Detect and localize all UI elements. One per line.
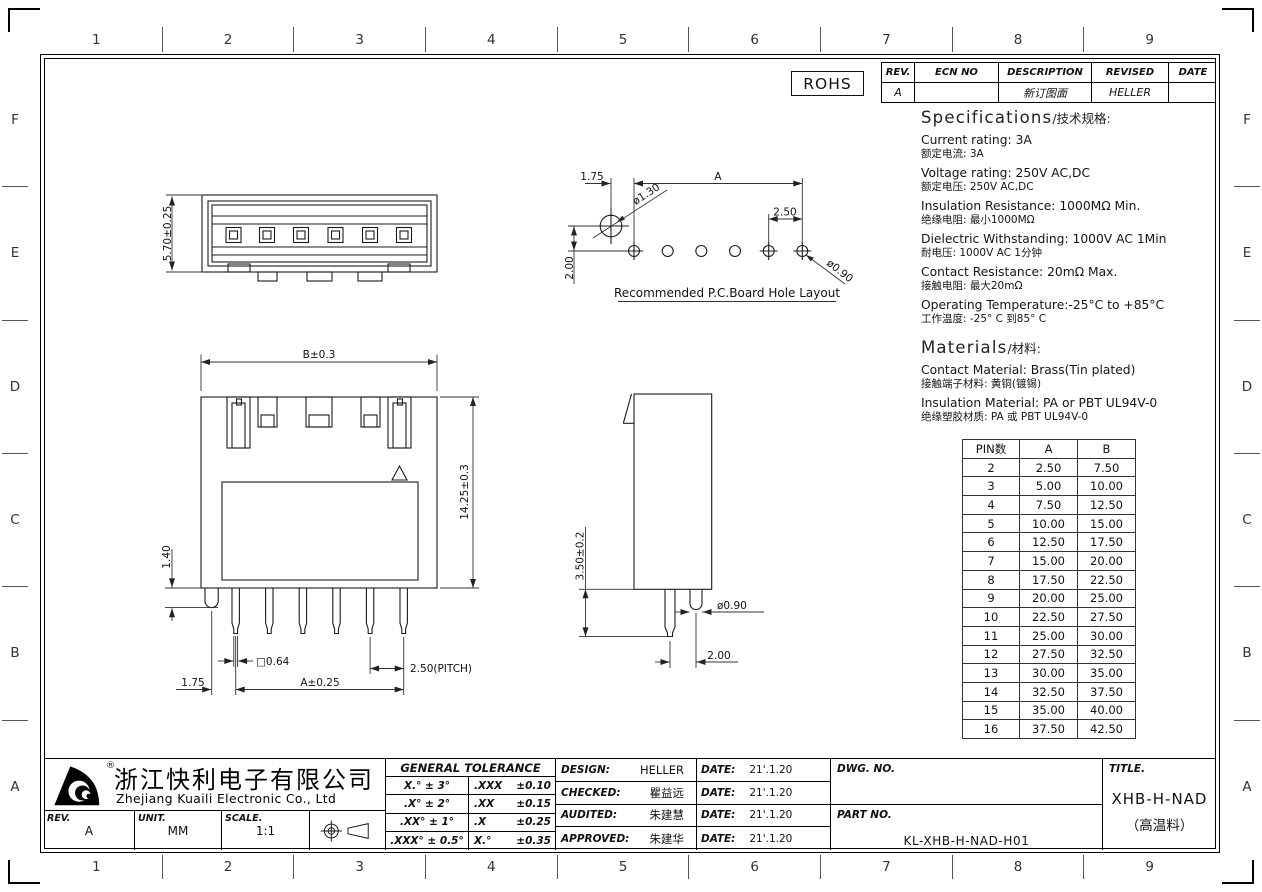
dim-a-cell: 12.50 (1020, 533, 1078, 552)
signature-label: CHECKED: (556, 787, 621, 799)
scale-field: SCALE. 1:1 (221, 811, 309, 850)
spec-item-zh: 工作温度: -25° C 到85° C (921, 313, 1217, 326)
revision-table-header: REV.ECN NODESCRIPTIONREVISEDDATE (882, 63, 1216, 83)
dim-b-cell: 30.00 (1078, 626, 1136, 645)
dim-b-cell: 37.50 (1078, 682, 1136, 701)
row-letter: C (1234, 453, 1260, 586)
signature-date: DATE: 21'.1.20 (696, 827, 831, 850)
dim-label-a: A±0.25 (300, 677, 339, 689)
materials-title-en: Materials (921, 338, 1007, 357)
material-item: Insulation Material: PA or PBT UL94V-0 绝… (921, 396, 1217, 423)
part-no-value: KL-XHB-H-NAD-H01 (831, 834, 1102, 848)
specifications-title-en: Specifications (921, 108, 1052, 127)
tolerance-angle: .XX° ± 1° (386, 814, 469, 831)
spec-item-en: Insulation Resistance: 1000MΩ Min. (921, 199, 1217, 214)
spec-item: Dielectric Withstanding: 1000V AC 1Min 耐… (921, 232, 1217, 259)
pin-table-row: 9 20.00 25.00 (963, 589, 1136, 608)
dim-b-cell: 22.50 (1078, 570, 1136, 589)
pin-table-row: 16 37.50 42.50 (963, 720, 1136, 739)
dim-label-hole-small: ø0.90 (824, 257, 855, 285)
dim-label-1-75: 1.75 (181, 677, 204, 689)
pin-table-row: 6 12.50 17.50 (963, 533, 1136, 552)
date-value: 21'.1.20 (749, 764, 792, 776)
side-view-dimensions (579, 527, 764, 668)
dwg-part-section: DWG. NO. PART NO. KL-XHB-H-NAD-H01 (830, 759, 1102, 850)
revision-header-cell: DATE (1169, 63, 1217, 82)
top-view-linework (202, 195, 437, 281)
column-number: 9 (1083, 27, 1215, 52)
revision-header-cell: REV. (882, 63, 915, 82)
standoff-peg (205, 588, 218, 608)
date-label: DATE: (697, 833, 735, 845)
side-standoff-peg (690, 589, 702, 609)
row-letter: B (2, 586, 28, 719)
spec-item-en: Operating Temperature:-25°C to +85°C (921, 298, 1217, 313)
company-name-en: Zhejiang Kuaili Electronic Co., Ltd (116, 792, 336, 806)
column-number: 3 (293, 27, 425, 52)
column-number: 4 (425, 855, 557, 879)
row-letter: B (1234, 586, 1260, 719)
dim-label-top-height: 5.70±0.25 (162, 206, 174, 262)
company-section: ® 浙江快利电子有限公司 Zhejiang Kuaili Electronic … (44, 759, 385, 850)
signature-date: DATE: 21'.1.20 (696, 759, 831, 781)
dim-a-cell: 7.50 (1020, 496, 1078, 515)
spec-item-zh: 绝缘电阻: 最小1000MΩ (921, 214, 1217, 227)
row-letter: E (1234, 186, 1260, 319)
material-item-en: Contact Material: Brass(Tin plated) (921, 363, 1217, 378)
company-fields: REV. A UNIT. MM SCALE. 1:1 (44, 811, 385, 850)
signature-name: 朱建慧 (650, 807, 685, 823)
company-logo (50, 763, 108, 807)
dim-a-cell: 25.00 (1020, 626, 1078, 645)
front-view-linework (201, 397, 437, 634)
dim-label-1-75: 1.75 (580, 171, 603, 183)
contact-cavities (226, 228, 412, 243)
signature-main: APPROVED: 朱建华 (556, 827, 696, 850)
column-number: 1 (31, 855, 162, 879)
pin-table-row: 3 5.00 10.00 (963, 477, 1136, 496)
dim-a-cell: 2.50 (1020, 458, 1078, 477)
dim-b-cell: 42.50 (1078, 720, 1136, 739)
spec-item: Operating Temperature:-25°C to +85°C 工作温… (921, 298, 1217, 325)
product-title-section: TITLE. XHB-H-NAD （高温料） (1102, 759, 1216, 850)
signature-main: DESIGN: HELLER (556, 759, 696, 781)
pin-table-row: 15 35.00 40.00 (963, 701, 1136, 720)
signature-row: DESIGN: HELLER DATE: 21'.1.20 (556, 759, 830, 782)
row-letter: E (2, 186, 28, 319)
spec-item-en: Contact Resistance: 20mΩ Max. (921, 265, 1217, 280)
tolerance-linear-key: .X (474, 816, 486, 828)
row-letter: F (2, 54, 28, 186)
specifications-list: Current rating: 3A 额定电流: 3A Voltage rati… (921, 133, 1217, 325)
rev-value: A (44, 824, 134, 838)
pins (232, 588, 407, 634)
spec-item-en: Voltage rating: 250V AC,DC (921, 166, 1217, 181)
tolerance-linear: .X ±0.25 (469, 814, 556, 831)
tolerance-title: GENERAL TOLERANCE (386, 759, 555, 777)
revision-revised: HELLER (1092, 83, 1169, 102)
signature-date: DATE: 21'.1.20 (696, 782, 831, 804)
pin-count-cell: 7 (963, 552, 1020, 571)
pin-table-header-cell: A (1020, 440, 1078, 459)
dwg-no-cell: DWG. NO. (831, 759, 1102, 805)
dim-a-cell: 27.50 (1020, 645, 1078, 664)
tolerance-row: .X° ± 2° .XX ±0.15 (386, 795, 555, 813)
pcb-dimensions (568, 178, 845, 302)
dim-a-cell: 5.00 (1020, 477, 1078, 496)
spec-item-en: Dielectric Withstanding: 1000V AC 1Min (921, 232, 1217, 247)
spec-item-zh: 接触电阻: 最大20mΩ (921, 280, 1217, 293)
tolerance-rows: X.° ± 3° .XXX ±0.10 .X° ± 2° .XX ±0.15 (386, 777, 555, 850)
pin-table-row: 7 15.00 20.00 (963, 552, 1136, 571)
column-ruler-top: 123456789 (31, 27, 1215, 52)
tolerance-linear-key: .XX (474, 798, 494, 810)
column-number: 5 (557, 855, 689, 879)
column-number: 2 (162, 27, 294, 52)
pin-count-cell: 8 (963, 570, 1020, 589)
row-ruler-left: FEDCBA (2, 54, 28, 853)
row-letter: D (2, 320, 28, 453)
date-value: 21'.1.20 (749, 809, 792, 821)
dim-b-cell: 25.00 (1078, 589, 1136, 608)
dim-label-pin-dia: ø0.90 (717, 600, 747, 612)
signature-name: 瞿益远 (650, 785, 685, 801)
material-item: Contact Material: Brass(Tin plated) 接触端子… (921, 363, 1217, 390)
pin-table-row: 13 30.00 35.00 (963, 664, 1136, 683)
dim-a-cell: 20.00 (1020, 589, 1078, 608)
dim-label-pin-square: □0.64 (256, 656, 290, 668)
signature-name: HELLER (640, 763, 684, 777)
tolerance-linear-value: ±0.35 (516, 835, 551, 847)
rohs-stamp: ROHS (791, 71, 864, 96)
date-value: 21'.1.20 (749, 787, 792, 799)
dim-a-cell: 37.50 (1020, 720, 1078, 739)
pin-table-row: 2 2.50 7.50 (963, 458, 1136, 477)
tolerance-angle: .X° ± 2° (386, 795, 469, 812)
material-item-en: Insulation Material: PA or PBT UL94V-0 (921, 396, 1217, 411)
projection-symbol-icon (318, 819, 376, 843)
signature-main: AUDITED: 朱建慧 (556, 805, 696, 827)
column-number: 3 (293, 855, 425, 879)
column-number: 7 (820, 855, 952, 879)
column-number: 6 (688, 27, 820, 52)
row-letter: A (2, 720, 28, 853)
revision-header-cell: ECN NO (915, 63, 999, 82)
column-number: 8 (952, 27, 1084, 52)
dim-b-cell: 32.50 (1078, 645, 1136, 664)
dim-b-cell: 40.00 (1078, 701, 1136, 720)
unit-field: UNIT. MM (134, 811, 221, 850)
spec-item: Insulation Resistance: 1000MΩ Min. 绝缘电阻:… (921, 199, 1217, 226)
part-no-cell: PART NO. KL-XHB-H-NAD-H01 (831, 805, 1102, 848)
signature-main: CHECKED: 瞿益远 (556, 782, 696, 804)
date-value: 21'.1.20 (749, 833, 792, 845)
row-letter: A (1234, 720, 1260, 853)
dim-a-cell: 32.50 (1020, 682, 1078, 701)
pin-table-header-row: PIN数AB (963, 440, 1136, 459)
pin-table-header-cell: B (1078, 440, 1136, 459)
pin-count-cell: 15 (963, 701, 1020, 720)
specifications-title-zh: /技术规格: (1052, 111, 1110, 126)
tolerance-row: .XXX° ± 0.5° X.° ±0.35 (386, 832, 555, 850)
tolerance-angle: .XXX° ± 0.5° (386, 832, 469, 850)
dim-a-cell: 30.00 (1020, 664, 1078, 683)
column-number: 8 (952, 855, 1084, 879)
signature-row: CHECKED: 瞿益远 DATE: 21'.1.20 (556, 782, 830, 805)
pcb-hole-layout-drawing: 1.75 A ø1.30 2.50 2.00 ø0.90 Recommended… (543, 158, 873, 308)
dim-b-cell: 17.50 (1078, 533, 1136, 552)
specifications-block: Specifications/技术规格: Current rating: 3A … (921, 108, 1217, 423)
dim-b-cell: 15.00 (1078, 514, 1136, 533)
revision-ecn (915, 83, 999, 102)
title-block: ® 浙江快利电子有限公司 Zhejiang Kuaili Electronic … (44, 758, 1216, 849)
dim-label-pitch: 2.50(PITCH) (410, 663, 472, 675)
tolerance-row: .XX° ± 1° .X ±0.25 (386, 814, 555, 832)
pin-dimension-table: PIN数AB 2 2.50 7.50 3 5.00 10.00 4 7.50 (962, 439, 1136, 739)
signature-row: AUDITED: 朱建慧 DATE: 21'.1.20 (556, 805, 830, 828)
dim-a-cell: 10.00 (1020, 514, 1078, 533)
spec-item-zh: 额定电流: 3A (921, 148, 1217, 161)
tolerance-linear: X.° ±0.35 (469, 832, 556, 850)
scale-value: 1:1 (222, 824, 309, 838)
spec-item: Current rating: 3A 额定电流: 3A (921, 133, 1217, 160)
pin-table-row: 10 22.50 27.50 (963, 608, 1136, 627)
dim-label-height: 3.50±0.2 (575, 532, 587, 581)
column-number: 5 (557, 27, 689, 52)
revision-table-row: A 新订图面 HELLER (882, 83, 1216, 102)
tolerance-linear-value: ±0.10 (516, 780, 551, 792)
title-label: TITLE. (1103, 759, 1216, 775)
part-no-label: PART NO. (831, 805, 1102, 821)
date-label: DATE: (697, 764, 735, 776)
dim-label-2-00: 2.00 (707, 650, 730, 662)
signature-date: DATE: 21'.1.20 (696, 805, 831, 827)
pcb-layout-caption: Recommended P.C.Board Hole Layout (614, 286, 840, 300)
materials-list: Contact Material: Brass(Tin plated) 接触端子… (921, 363, 1217, 423)
unit-label: UNIT. (138, 813, 166, 824)
top-view-drawing: 5.70±0.25 (158, 183, 462, 310)
product-subtitle: （高温料） (1103, 814, 1216, 834)
date-label: DATE: (697, 809, 735, 821)
materials-title: Materials/材料: (921, 338, 1217, 357)
side-view-drawing: 3.50±0.2 ø0.90 2.00 (568, 376, 773, 674)
dim-b-cell: 27.50 (1078, 608, 1136, 627)
pin-count-cell: 11 (963, 626, 1020, 645)
dim-a-cell: 17.50 (1020, 570, 1078, 589)
dim-label-2-00: 2.00 (564, 256, 576, 279)
dim-b-cell: 10.00 (1078, 477, 1136, 496)
dim-a-cell: 22.50 (1020, 608, 1078, 627)
scale-label: SCALE. (225, 813, 262, 824)
signature-label: AUDITED: (556, 809, 617, 821)
rev-label: REV. (47, 813, 70, 824)
spec-item-zh: 耐电压: 1000V AC 1分钟 (921, 247, 1217, 260)
tolerance-section: GENERAL TOLERANCE X.° ± 3° .XXX ±0.10 .X… (385, 759, 555, 850)
dim-label-2-50: 2.50 (773, 207, 796, 219)
revision-header-cell: REVISED (1092, 63, 1169, 82)
dim-b-cell: 7.50 (1078, 458, 1136, 477)
tolerance-linear-value: ±0.25 (516, 816, 551, 828)
projection-field (309, 811, 385, 850)
row-letter: D (1234, 320, 1260, 453)
unit-value: MM (135, 824, 221, 838)
front-view-dimensions (165, 355, 479, 696)
pin-count-cell: 10 (963, 608, 1020, 627)
company-name-zh: 浙江快利电子有限公司 (114, 760, 374, 795)
tolerance-linear-key: .XXX (474, 780, 502, 792)
dim-b-cell: 20.00 (1078, 552, 1136, 571)
signature-label: APPROVED: (556, 833, 629, 845)
row-letter: F (1234, 54, 1260, 186)
dim-label-1-40: 1.40 (161, 545, 173, 568)
pin-table-row: 8 17.50 22.50 (963, 570, 1136, 589)
column-ruler-bottom: 123456789 (31, 855, 1215, 879)
pin-table-body: 2 2.50 7.50 3 5.00 10.00 4 7.50 12.50 (963, 458, 1136, 738)
side-pin (665, 589, 675, 636)
pin-table-row: 11 25.00 30.00 (963, 626, 1136, 645)
front-view-drawing: B±0.3 14.25±0.3 1.40 □0.64 2.50(PITCH) 1… (153, 343, 503, 705)
revision-rev: A (882, 83, 915, 102)
signatures-section: DESIGN: HELLER DATE: 21'.1.20 CHECKED: 瞿… (555, 759, 830, 850)
pin-count-cell: 2 (963, 458, 1020, 477)
row-letter: C (2, 453, 28, 586)
tolerance-linear-key: X.° (474, 835, 491, 847)
tolerance-angle: X.° ± 3° (386, 777, 469, 794)
pin-count-cell: 4 (963, 496, 1020, 515)
revision-date (1169, 83, 1217, 102)
tolerance-row: X.° ± 3° .XXX ±0.10 (386, 777, 555, 795)
column-number: 7 (820, 27, 952, 52)
pin-table-row: 12 27.50 32.50 (963, 645, 1136, 664)
product-title: XHB-H-NAD (1103, 790, 1216, 808)
dim-label-height: 14.25±0.3 (459, 464, 471, 520)
specifications-title: Specifications/技术规格: (921, 108, 1217, 127)
corner-mark-top-right (1222, 8, 1254, 32)
pin-table-row: 14 32.50 37.50 (963, 682, 1136, 701)
pin-table-header-cell: PIN数 (963, 440, 1020, 459)
signature-row: APPROVED: 朱建华 DATE: 21'.1.20 (556, 827, 830, 850)
tolerance-linear: .XXX ±0.10 (469, 777, 556, 794)
pin-count-cell: 13 (963, 664, 1020, 683)
column-number: 6 (688, 855, 820, 879)
corner-mark-bottom-right (1222, 860, 1254, 884)
dim-b-cell: 12.50 (1078, 496, 1136, 515)
signature-label: DESIGN: (556, 764, 610, 776)
dim-b-cell: 35.00 (1078, 664, 1136, 683)
side-view-linework (623, 394, 711, 637)
dim-label-a: A (714, 171, 722, 183)
tolerance-linear-value: ±0.15 (516, 798, 551, 810)
pin-count-cell: 6 (963, 533, 1020, 552)
pin-count-cell: 12 (963, 645, 1020, 664)
pin-count-cell: 9 (963, 589, 1020, 608)
spec-item: Voltage rating: 250V AC,DC 额定电压: 250V AC… (921, 166, 1217, 193)
spec-item: Contact Resistance: 20mΩ Max. 接触电阻: 最大20… (921, 265, 1217, 292)
materials-title-zh: /材料: (1007, 341, 1040, 356)
dim-a-cell: 35.00 (1020, 701, 1078, 720)
pin-count-cell: 3 (963, 477, 1020, 496)
company-header: ® 浙江快利电子有限公司 Zhejiang Kuaili Electronic … (44, 759, 385, 811)
drawing-sheet: 123456789 123456789 FEDCBA FEDCBA ROHS R… (0, 0, 1262, 892)
spec-item-en: Current rating: 3A (921, 133, 1217, 148)
column-number: 9 (1083, 855, 1215, 879)
tolerance-linear: .XX ±0.15 (469, 795, 556, 812)
column-number: 1 (31, 27, 162, 52)
pin-table-row: 5 10.00 15.00 (963, 514, 1136, 533)
spec-item-zh: 额定电压: 250V AC,DC (921, 181, 1217, 194)
pin-table-row: 4 7.50 12.50 (963, 496, 1136, 515)
pin-count-cell: 5 (963, 514, 1020, 533)
revision-table: REV.ECN NODESCRIPTIONREVISEDDATE A 新订图面 … (881, 62, 1216, 103)
signature-name: 朱建华 (650, 831, 685, 847)
pin-count-cell: 16 (963, 720, 1020, 739)
column-number: 4 (425, 27, 557, 52)
pin-count-cell: 14 (963, 682, 1020, 701)
material-item-zh: 绝缘塑胶材质: PA 或 PBT UL94V-0 (921, 411, 1217, 424)
revision-header-cell: DESCRIPTION (999, 63, 1092, 82)
dim-a-cell: 15.00 (1020, 552, 1078, 571)
revision-description: 新订图面 (999, 83, 1092, 102)
date-label: DATE: (697, 787, 735, 799)
row-ruler-right: FEDCBA (1234, 54, 1260, 853)
column-number: 2 (162, 855, 294, 879)
dwg-no-label: DWG. NO. (831, 759, 1102, 775)
rev-field: REV. A (44, 811, 134, 850)
dim-label-b: B±0.3 (303, 349, 336, 361)
material-item-zh: 接触端子材料: 黄铜(镀锡) (921, 378, 1217, 391)
